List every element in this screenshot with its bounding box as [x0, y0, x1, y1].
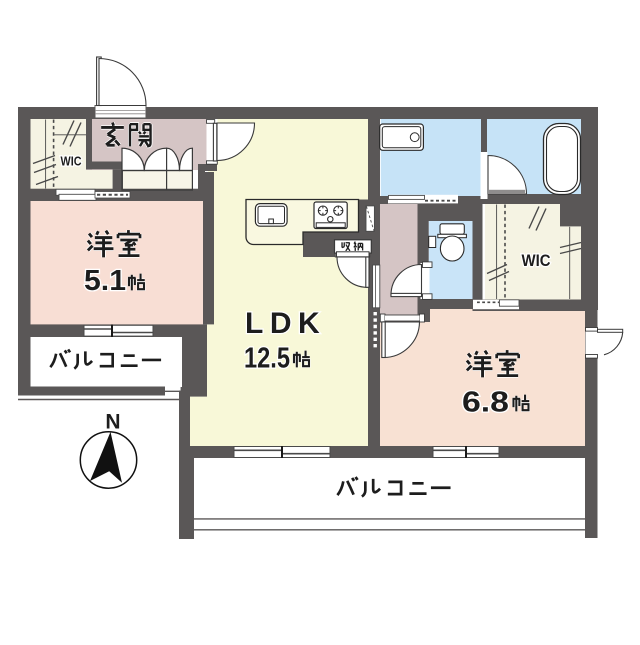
svg-text:6.8: 6.8: [462, 387, 509, 419]
svg-text:WIC: WIC: [61, 155, 82, 169]
svg-text:N: N: [105, 411, 120, 434]
svg-text:12.5: 12.5: [244, 343, 290, 375]
svg-text:WIC: WIC: [522, 251, 551, 270]
svg-text:LDK: LDK: [245, 307, 326, 340]
svg-text:5.1: 5.1: [84, 265, 126, 297]
